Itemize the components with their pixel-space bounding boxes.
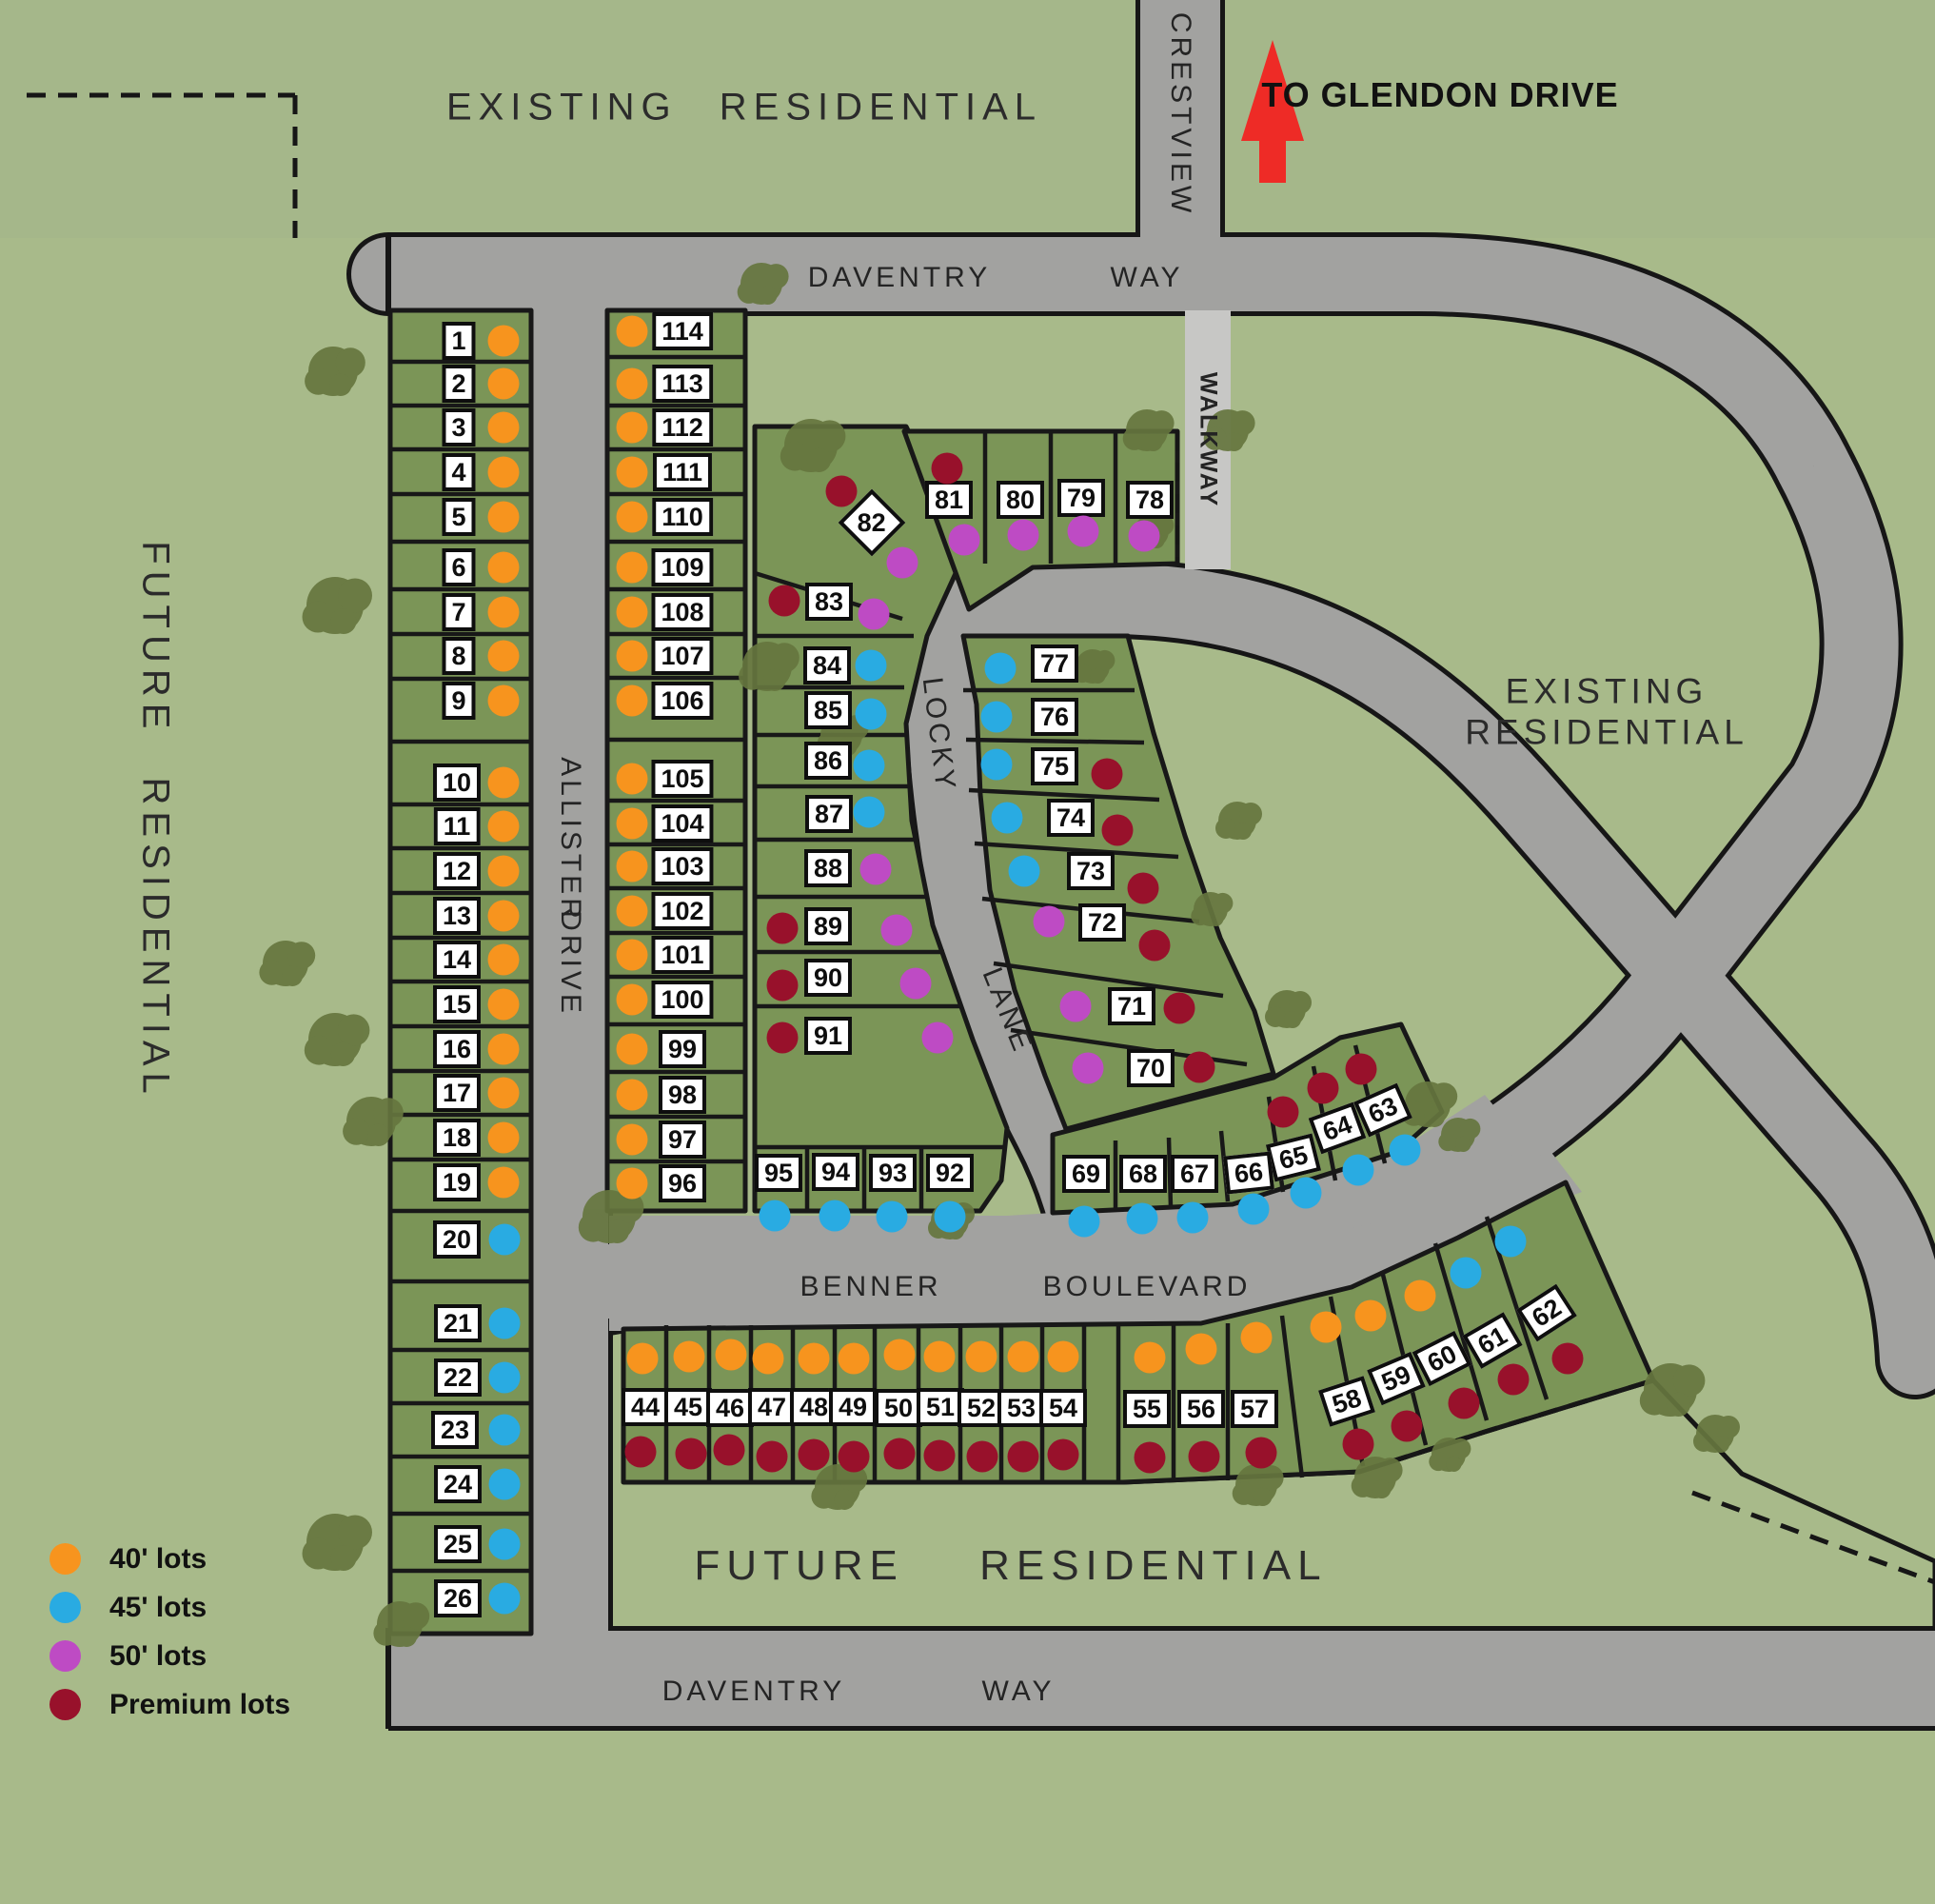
tree-icon <box>338 579 372 613</box>
lot-48-dot-premium <box>799 1439 830 1471</box>
lot-label-22: 22 <box>434 1359 482 1397</box>
tree-icon <box>338 1516 372 1550</box>
lot-number-23: 23 <box>441 1416 469 1445</box>
tree-icon <box>1230 410 1254 435</box>
tree-icon <box>1372 1479 1392 1498</box>
lot-64-dot-premium <box>1308 1073 1339 1104</box>
tree-icon <box>1208 911 1223 926</box>
lot-number-20: 20 <box>443 1225 471 1255</box>
tree-icon <box>1640 1386 1669 1416</box>
lot-number-56: 56 <box>1187 1395 1215 1424</box>
tree-icon <box>605 1220 629 1243</box>
lot-14-dot-40 <box>488 944 520 976</box>
lot-number-60: 60 <box>1423 1339 1462 1378</box>
lot-label-72: 72 <box>1078 903 1126 942</box>
lot-number-4: 4 <box>451 458 465 487</box>
lot-number-70: 70 <box>1136 1054 1165 1083</box>
lot-50-dot-premium <box>884 1438 916 1470</box>
lot-number-12: 12 <box>443 857 471 886</box>
lot-label-106: 106 <box>651 682 713 720</box>
lot-number-112: 112 <box>661 413 703 443</box>
lot-52-dot-premium <box>967 1441 998 1473</box>
tree-icon <box>1446 1457 1461 1472</box>
lot-number-47: 47 <box>758 1393 786 1422</box>
lot-number-1: 1 <box>451 327 465 356</box>
lot-label-45: 45 <box>664 1388 712 1426</box>
lot-65-dot-premium <box>1268 1097 1299 1128</box>
lot-number-51: 51 <box>926 1393 955 1422</box>
lot-label-77: 77 <box>1031 645 1078 683</box>
lot-number-2: 2 <box>451 369 465 399</box>
tree-icon <box>1144 432 1163 451</box>
lot-number-77: 77 <box>1040 649 1069 679</box>
lot-number-71: 71 <box>1117 992 1146 1021</box>
lot-label-91: 91 <box>804 1017 852 1055</box>
lot-62-dot-45 <box>1495 1226 1527 1258</box>
lot-label-100: 100 <box>651 981 713 1019</box>
lot-label-113: 113 <box>652 365 713 403</box>
lot-16-dot-40 <box>488 1034 520 1065</box>
lot-label-44: 44 <box>622 1388 669 1426</box>
lot-47-dot-premium <box>757 1441 788 1473</box>
lot-number-103: 103 <box>661 852 703 882</box>
lot-label-104: 104 <box>651 804 713 843</box>
lot-label-3: 3 <box>442 408 475 446</box>
lot-109-dot-40 <box>617 552 648 584</box>
benner-boulevard-label-0: BENNER <box>800 1271 941 1303</box>
tree-icon <box>1234 823 1252 840</box>
tree-icon <box>1717 1416 1740 1438</box>
lot-100-dot-40 <box>617 984 648 1016</box>
lot-54-dot-40 <box>1048 1341 1079 1373</box>
lot-number-17: 17 <box>443 1079 471 1108</box>
lot-label-103: 103 <box>651 847 713 885</box>
lot-73-dot-45 <box>1009 856 1040 887</box>
tree-icon <box>1352 1475 1374 1497</box>
lot-3-dot-40 <box>488 412 520 444</box>
tree-icon <box>579 1213 608 1242</box>
lot-label-71: 71 <box>1108 987 1155 1025</box>
legend-label-50: 50' lots <box>109 1640 207 1673</box>
legend-item-premium: Premium lots <box>49 1680 290 1729</box>
lot-label-15: 15 <box>433 985 481 1023</box>
lot-number-95: 95 <box>764 1159 793 1188</box>
lot-64-dot-45 <box>1343 1155 1374 1186</box>
lot-26-dot-45 <box>489 1583 521 1615</box>
lot-label-110: 110 <box>652 498 713 536</box>
lot-number-82: 82 <box>858 507 886 537</box>
lot-45-dot-40 <box>674 1341 705 1373</box>
lot-98-dot-40 <box>617 1080 648 1111</box>
lot-number-109: 109 <box>661 553 703 583</box>
lot-69-dot-45 <box>1069 1206 1100 1238</box>
lot-97-dot-40 <box>617 1124 648 1156</box>
lot-46-dot-premium <box>714 1435 745 1466</box>
lot-label-85: 85 <box>804 691 852 729</box>
lot-number-101: 101 <box>661 941 703 970</box>
lot-number-92: 92 <box>936 1159 964 1188</box>
tree-icon <box>1693 1431 1714 1452</box>
lot-number-87: 87 <box>815 800 843 829</box>
lot-91-dot-50 <box>922 1022 954 1054</box>
tree-icon <box>834 1489 855 1510</box>
legend-label-premium: Premium lots <box>109 1689 290 1721</box>
lot-91-dot-premium <box>767 1022 799 1054</box>
lot-17-dot-40 <box>488 1078 520 1109</box>
lot-49-dot-premium <box>839 1441 870 1473</box>
lot-number-50: 50 <box>884 1394 913 1423</box>
lot-66-dot-45 <box>1238 1194 1270 1225</box>
lot-number-84: 84 <box>813 651 841 681</box>
lot-number-7: 7 <box>451 598 465 627</box>
lot-label-16: 16 <box>433 1030 481 1068</box>
benner-boulevard-label-1: BOULEVARD <box>1043 1271 1252 1303</box>
lot-90-dot-premium <box>767 970 799 1002</box>
lot-59-dot-40 <box>1355 1300 1387 1332</box>
allister-drive-label-0: ALLISTER <box>554 757 586 922</box>
lot-label-95: 95 <box>755 1154 802 1192</box>
lot-82-dot-premium <box>826 476 858 507</box>
lot-4-dot-40 <box>488 457 520 488</box>
tree-icon <box>1673 1364 1706 1397</box>
tree-icon <box>1095 650 1116 671</box>
legend: 40' lots45' lots50' lotsPremium lots <box>49 1535 290 1729</box>
lot-number-14: 14 <box>443 945 471 975</box>
lot-73-dot-premium <box>1128 873 1159 904</box>
tree-icon <box>759 286 778 305</box>
tree-icon <box>305 1036 334 1065</box>
lot-label-4: 4 <box>442 453 475 491</box>
lot-number-86: 86 <box>814 746 842 776</box>
lot-label-57: 57 <box>1231 1390 1278 1428</box>
lot-label-18: 18 <box>433 1119 481 1157</box>
lot-number-96: 96 <box>668 1169 697 1199</box>
daventry-way-top-label-0: DAVENTRY <box>808 262 992 294</box>
lot-label-84: 84 <box>803 646 851 684</box>
lot-label-76: 76 <box>1031 698 1078 736</box>
lot-label-81: 81 <box>925 481 973 519</box>
lot-number-114: 114 <box>661 317 703 347</box>
lot-53-dot-premium <box>1008 1441 1039 1473</box>
tree-icon <box>739 663 766 690</box>
lot-number-19: 19 <box>443 1168 471 1198</box>
lot-102-dot-40 <box>617 896 648 927</box>
lot-label-86: 86 <box>804 742 852 780</box>
lot-61-dot-premium <box>1498 1364 1530 1396</box>
lot-number-105: 105 <box>661 764 703 794</box>
lot-71-dot-50 <box>1060 991 1092 1022</box>
lot-label-101: 101 <box>651 936 713 974</box>
tree-icon <box>1149 410 1174 435</box>
lot-label-89: 89 <box>804 907 852 945</box>
tree-icon <box>396 1626 417 1647</box>
tree-icon <box>336 347 365 377</box>
lot-label-107: 107 <box>651 637 713 675</box>
lot-number-76: 76 <box>1040 703 1069 732</box>
lot-11-dot-40 <box>488 811 520 843</box>
lot-19-dot-40 <box>488 1167 520 1199</box>
lot-52-dot-40 <box>966 1341 997 1373</box>
tree-icon <box>814 420 846 452</box>
lot-55-dot-40 <box>1135 1342 1166 1374</box>
lot-92-dot-45 <box>935 1201 966 1233</box>
lot-number-63: 63 <box>1364 1091 1402 1130</box>
lot-number-89: 89 <box>814 912 842 942</box>
legend-dot-50 <box>49 1640 81 1672</box>
lot-81-dot-premium <box>932 453 963 485</box>
lot-58-dot-premium <box>1343 1429 1374 1460</box>
lot-number-49: 49 <box>839 1393 867 1422</box>
tree-icon <box>1191 906 1210 925</box>
lot-49-dot-40 <box>839 1343 870 1375</box>
lot-number-74: 74 <box>1056 803 1085 833</box>
tree-icon <box>1265 1006 1286 1027</box>
lot-70-dot-50 <box>1073 1053 1104 1084</box>
lot-label-19: 19 <box>433 1163 481 1201</box>
tree-icon <box>367 1124 389 1146</box>
lot-label-7: 7 <box>442 593 475 631</box>
lot-75-dot-45 <box>981 749 1013 781</box>
lot-number-58: 58 <box>1329 1383 1365 1420</box>
lot-label-97: 97 <box>659 1121 706 1159</box>
lot-number-8: 8 <box>451 642 465 671</box>
lot-86-dot-45 <box>854 750 885 782</box>
lot-111-dot-40 <box>617 457 648 488</box>
lot-label-87: 87 <box>805 795 853 833</box>
lot-93-dot-45 <box>877 1201 908 1233</box>
tree-icon <box>1455 1137 1471 1152</box>
lot-label-23: 23 <box>431 1411 479 1449</box>
site-plan: 40' lots45' lots50' lotsPremium lots EXI… <box>0 0 1935 1904</box>
tree-icon <box>1377 1458 1402 1482</box>
lot-label-80: 80 <box>997 481 1044 519</box>
lot-24-dot-45 <box>489 1469 521 1500</box>
lot-number-48: 48 <box>800 1393 828 1422</box>
lot-number-24: 24 <box>444 1470 472 1499</box>
lot-56-dot-40 <box>1186 1334 1217 1365</box>
tree-icon <box>402 1602 429 1630</box>
lot-label-13: 13 <box>433 897 481 935</box>
legend-item-45: 45' lots <box>49 1583 290 1632</box>
tree-icon <box>282 965 303 986</box>
tree-icon <box>1667 1393 1690 1417</box>
lot-78-dot-50 <box>1129 521 1160 552</box>
lot-107-dot-40 <box>617 641 648 672</box>
lot-label-17: 17 <box>433 1074 481 1112</box>
tree-icon <box>259 960 284 984</box>
lot-number-67: 67 <box>1180 1160 1209 1189</box>
legend-label-45: 45' lots <box>109 1592 207 1624</box>
tree-icon <box>303 1538 334 1570</box>
lot-13-dot-40 <box>488 901 520 932</box>
tree-icon <box>331 1545 357 1571</box>
lot-68-dot-45 <box>1127 1203 1158 1235</box>
lot-7-dot-40 <box>488 597 520 628</box>
lot-number-80: 80 <box>1006 486 1035 515</box>
lot-number-75: 75 <box>1040 752 1069 782</box>
lot-label-68: 68 <box>1119 1155 1167 1193</box>
lot-8-dot-40 <box>488 641 520 672</box>
lot-number-64: 64 <box>1319 1109 1356 1146</box>
lot-label-78: 78 <box>1126 481 1174 519</box>
lot-number-6: 6 <box>451 553 465 583</box>
lot-label-6: 6 <box>442 548 475 586</box>
lot-85-dot-45 <box>856 699 887 730</box>
lot-label-26: 26 <box>434 1579 482 1617</box>
lot-63-dot-45 <box>1390 1135 1421 1166</box>
lot-56-dot-premium <box>1189 1441 1220 1473</box>
lot-101-dot-40 <box>617 940 648 971</box>
lot-number-102: 102 <box>661 897 703 926</box>
lot-label-83: 83 <box>805 583 853 621</box>
tree-icon <box>770 643 800 672</box>
lot-2-dot-40 <box>488 368 520 400</box>
lot-label-99: 99 <box>659 1030 706 1068</box>
lot-96-dot-40 <box>617 1168 648 1200</box>
lot-number-25: 25 <box>444 1530 472 1559</box>
lot-9-dot-40 <box>488 685 520 717</box>
lot-71-dot-premium <box>1164 993 1195 1024</box>
lot-label-98: 98 <box>659 1076 706 1114</box>
lot-number-78: 78 <box>1135 486 1164 515</box>
lot-50-dot-40 <box>884 1339 916 1371</box>
lot-87-dot-45 <box>854 797 885 828</box>
tree-icon <box>338 1014 370 1046</box>
existing-residential-right: EXISTINGRESIDENTIAL <box>1465 671 1748 752</box>
lot-number-81: 81 <box>935 486 963 515</box>
lot-number-16: 16 <box>443 1035 471 1064</box>
lot-label-2: 2 <box>442 365 475 403</box>
lot-number-21: 21 <box>444 1309 472 1339</box>
tree-icon <box>331 1042 355 1066</box>
tree-icon <box>1289 991 1312 1014</box>
lot-label-12: 12 <box>433 852 481 890</box>
lot-number-104: 104 <box>661 809 703 839</box>
lot-label-54: 54 <box>1039 1389 1087 1427</box>
lot-label-105: 105 <box>651 760 713 798</box>
lot-108-dot-40 <box>617 597 648 628</box>
lot-80-dot-50 <box>1008 520 1039 551</box>
tree-icon <box>1239 803 1262 825</box>
lot-number-90: 90 <box>814 963 842 993</box>
lot-10-dot-40 <box>488 767 520 799</box>
lot-114-dot-40 <box>617 316 648 347</box>
future-residential-left: FUTURE RESIDENTIAL <box>134 541 177 1101</box>
lot-113-dot-40 <box>617 368 648 400</box>
lot-63-dot-premium <box>1346 1054 1377 1085</box>
lot-label-111: 111 <box>653 453 712 491</box>
to-glendon-drive: TO GLENDON DRIVE <box>1261 75 1618 115</box>
lot-number-18: 18 <box>443 1123 471 1153</box>
tree-icon <box>1215 818 1236 839</box>
lot-label-53: 53 <box>997 1389 1045 1427</box>
lot-48-dot-40 <box>799 1343 830 1375</box>
legend-dot-40 <box>49 1543 81 1575</box>
lot-number-72: 72 <box>1088 908 1116 938</box>
lot-label-73: 73 <box>1067 852 1115 890</box>
lot-number-73: 73 <box>1076 857 1105 886</box>
lot-number-79: 79 <box>1067 484 1096 513</box>
lot-22-dot-45 <box>489 1362 521 1394</box>
lot-number-94: 94 <box>821 1158 850 1187</box>
tree-icon <box>1213 893 1234 914</box>
tree-icon <box>331 608 357 634</box>
lot-51-dot-premium <box>924 1440 956 1472</box>
lot-number-111: 111 <box>662 458 702 487</box>
lot-label-70: 70 <box>1127 1049 1175 1087</box>
lot-label-92: 92 <box>926 1154 974 1192</box>
tree-icon <box>329 374 351 396</box>
tree-icon <box>1438 1132 1457 1151</box>
lot-110-dot-40 <box>617 502 648 533</box>
lot-label-96: 96 <box>659 1164 706 1202</box>
existing-residential-top: EXISTING RESIDENTIAL <box>446 87 1042 129</box>
lot-label-24: 24 <box>434 1465 482 1503</box>
lot-74-dot-45 <box>992 803 1023 834</box>
lot-number-52: 52 <box>967 1394 996 1423</box>
lot-label-9: 9 <box>442 682 475 720</box>
lot-number-22: 22 <box>444 1363 472 1393</box>
lot-60-dot-40 <box>1405 1280 1436 1312</box>
lot-95-dot-45 <box>760 1200 791 1232</box>
lot-number-11: 11 <box>444 812 471 842</box>
daventry-way-bottom-label-0: DAVENTRY <box>662 1676 846 1708</box>
lot-18-dot-40 <box>488 1122 520 1154</box>
lot-45-dot-premium <box>676 1438 707 1470</box>
lot-label-102: 102 <box>651 892 713 930</box>
tree-icon <box>1225 432 1244 451</box>
allister-drive-label-1: DRIVE <box>554 910 586 1017</box>
lot-number-15: 15 <box>443 990 471 1020</box>
lot-label-8: 8 <box>442 637 475 675</box>
lot-label-14: 14 <box>433 941 481 979</box>
lot-number-10: 10 <box>443 768 471 798</box>
lot-label-21: 21 <box>434 1304 482 1342</box>
lot-number-65: 65 <box>1276 1140 1312 1175</box>
tree-icon <box>1233 1482 1255 1505</box>
lot-83-dot-50 <box>859 599 890 630</box>
lot-label-93: 93 <box>869 1154 917 1192</box>
lot-72-dot-50 <box>1034 906 1065 938</box>
lot-72-dot-premium <box>1139 930 1171 962</box>
lot-label-114: 114 <box>652 312 713 350</box>
lot-90-dot-50 <box>900 968 932 1000</box>
lot-57-dot-40 <box>1241 1322 1273 1354</box>
lot-112-dot-40 <box>617 412 648 444</box>
lot-label-56: 56 <box>1177 1390 1225 1428</box>
lot-54-dot-premium <box>1048 1439 1079 1471</box>
lot-55-dot-premium <box>1135 1442 1166 1474</box>
lot-number-113: 113 <box>661 369 703 399</box>
walkway-label-0: WALKWAY <box>1195 372 1222 507</box>
tree-icon <box>1254 1487 1273 1506</box>
lot-label-11: 11 <box>434 807 481 845</box>
lot-59-dot-premium <box>1392 1411 1423 1442</box>
lot-number-26: 26 <box>444 1584 472 1614</box>
lot-1-dot-40 <box>488 326 520 357</box>
daventry-way-top-label-1: WAY <box>1111 262 1184 294</box>
tree-icon <box>811 1483 836 1508</box>
legend-dot-45 <box>49 1592 81 1623</box>
tree-icon <box>1451 1438 1471 1459</box>
lot-89-dot-50 <box>881 915 913 946</box>
lot-53-dot-40 <box>1008 1341 1039 1373</box>
lot-103-dot-40 <box>617 851 648 883</box>
lot-number-54: 54 <box>1049 1394 1077 1423</box>
lot-82-dot-50 <box>887 547 918 579</box>
lot-label-109: 109 <box>651 548 713 586</box>
lot-label-67: 67 <box>1171 1155 1218 1193</box>
